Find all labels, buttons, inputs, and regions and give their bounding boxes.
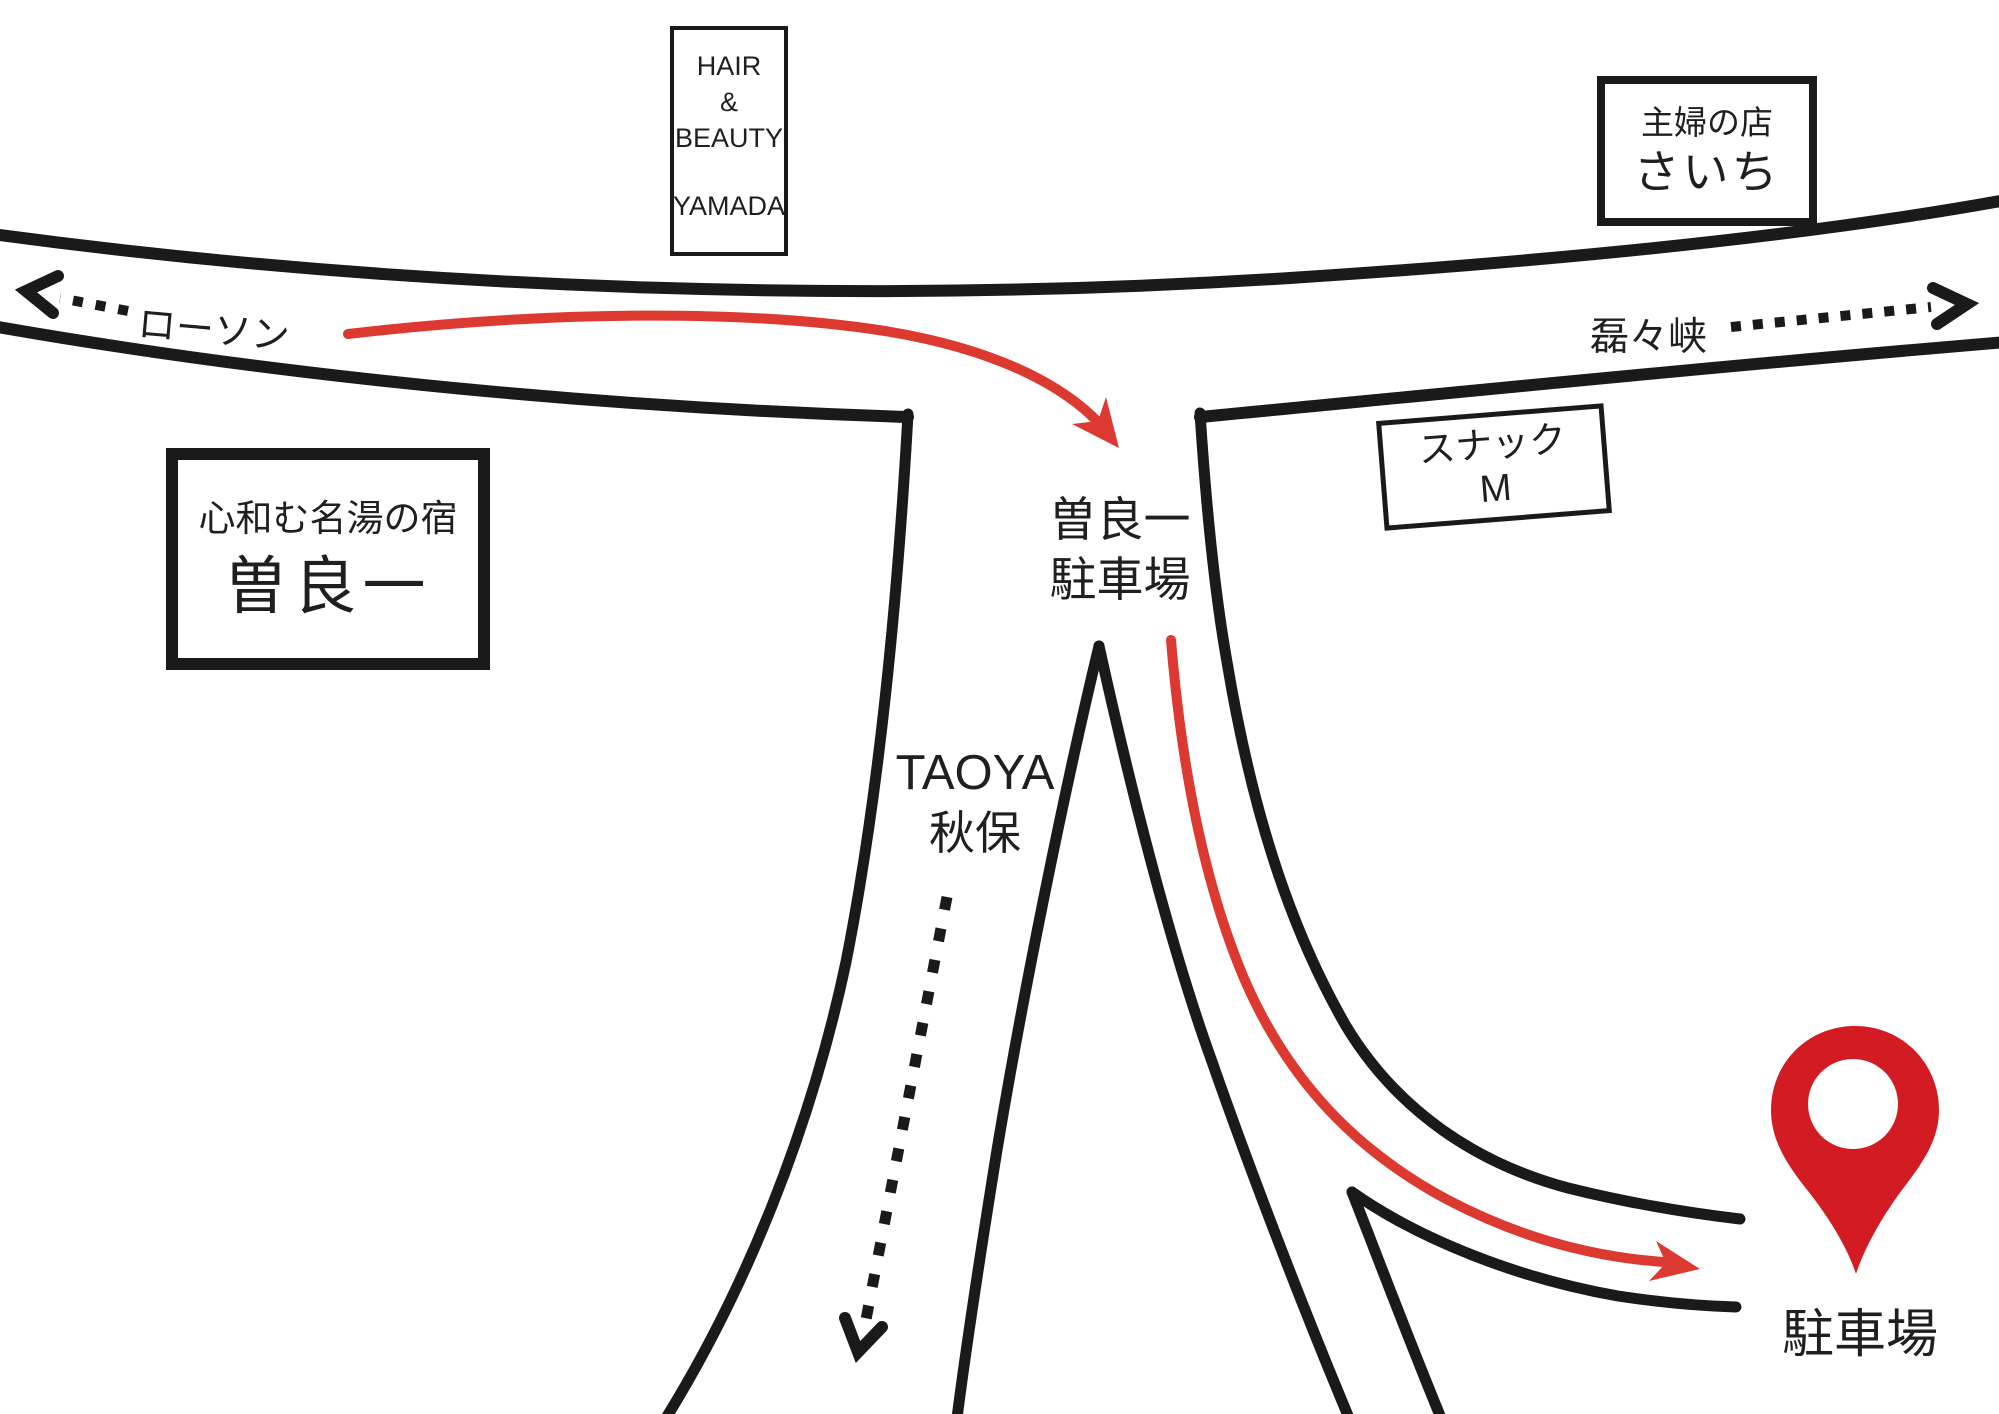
hair-salon-line1: HAIR	[697, 48, 762, 84]
soraichi-parking-label: 曽良一 駐車場	[1013, 490, 1227, 610]
snack-m-line1: スナック	[1417, 419, 1568, 470]
taoya-line2: 秋保	[868, 803, 1082, 863]
hair-salon-line3: BEAUTY	[675, 120, 783, 156]
hair-salon-line4: YAMADA	[673, 188, 785, 224]
taoya-label: TAOYA 秋保	[868, 743, 1082, 863]
saichi-store-sign: 主婦の店 さいち	[1597, 76, 1817, 226]
road-south-left-edge	[666, 414, 908, 1414]
rairaikyo-arrowhead	[1933, 288, 1967, 324]
lawson-arrowhead	[26, 276, 58, 313]
taoya-dotted-line	[864, 897, 947, 1330]
dotted-arrow-right-icon	[1731, 288, 1967, 327]
ryokan-soraichi-sign: 心和む名湯の宿 曽良一	[166, 448, 490, 670]
hair-salon-sign: HAIR & BEAUTY YAMADA	[670, 26, 788, 256]
saichi-subtitle: 主婦の店	[1641, 106, 1773, 140]
rairaikyo-dotted-line	[1731, 307, 1931, 327]
dotted-arrow-down-icon	[845, 897, 947, 1352]
snack-m-sign: スナック M	[1376, 403, 1612, 531]
hair-salon-line2: &	[720, 84, 738, 120]
saichi-name: さいち	[1634, 148, 1781, 196]
road-fork-right-edge	[1099, 646, 1349, 1414]
soraichi-parking-line1: 曽良一	[1013, 490, 1227, 550]
snack-m-line2: M	[1478, 468, 1513, 510]
taoya-line1: TAOYA	[868, 743, 1082, 803]
soraichi-parking-line2: 駐車場	[1013, 550, 1227, 610]
ryokan-name: 曽良一	[225, 555, 432, 619]
lawson-dotted-line	[60, 298, 128, 311]
ryokan-tagline: 心和む名湯の宿	[199, 499, 458, 539]
parking-destination-label: 駐車場	[1762, 1292, 1958, 1367]
road-south-right-edge	[1200, 413, 1740, 1219]
rairaikyo-label: 磊々峡	[1586, 306, 1711, 362]
dotted-arrow-left-icon	[26, 276, 128, 313]
access-map: HAIR & BEAUTY YAMADA 主婦の店 さいち 心和む名湯の宿 曽良…	[0, 0, 1999, 1414]
taoya-arrowhead	[845, 1318, 882, 1352]
map-pin-icon	[1771, 1026, 1939, 1274]
map-pin-hole	[1808, 1059, 1898, 1149]
